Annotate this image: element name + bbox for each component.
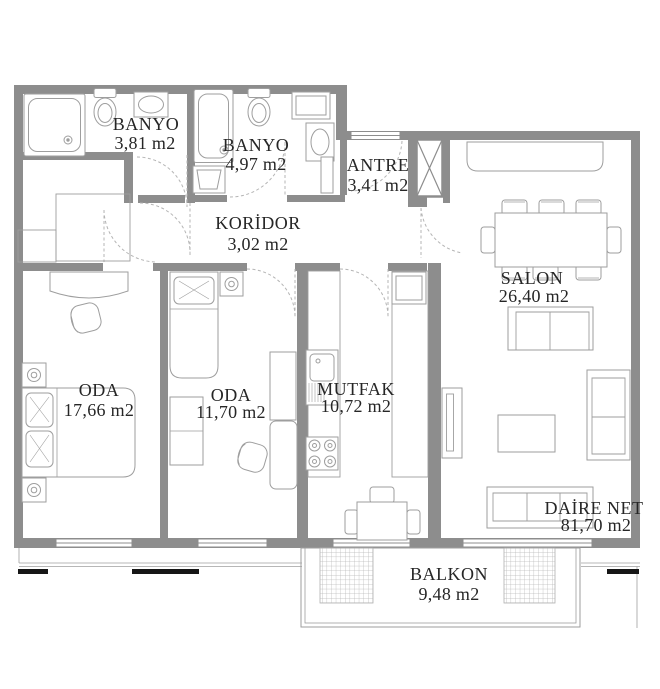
cabinet-icon (321, 157, 333, 193)
label-antre-area: 3,41 m2 (347, 175, 408, 195)
loveseat-icon (508, 307, 593, 350)
desk-icon (50, 272, 128, 298)
chair-icon (235, 440, 269, 475)
tv-unit-icon (442, 388, 462, 458)
nightstand-icon (22, 363, 46, 387)
label-balkon-area: 9,48 m2 (418, 584, 479, 604)
label-oda1-name: ODA (79, 380, 120, 400)
floor-plan: BANYO 3,81 m2 BANYO 4,97 m2 ANTRE 3,41 m… (0, 0, 660, 689)
cabinet-icon (292, 92, 330, 119)
balcony (18, 548, 640, 628)
kitchen-table-icon (345, 487, 420, 540)
door-swing-oda2 (247, 269, 295, 317)
balcony-hatch (320, 548, 373, 603)
label-banyo2-area: 4,97 m2 (225, 154, 286, 174)
door-swing-mutfak (340, 269, 388, 317)
label-oda2-area: 11,70 m2 (196, 402, 266, 422)
label-banyo1-name: BANYO (113, 114, 180, 134)
terrace-line (19, 548, 302, 567)
dining-table-icon (495, 213, 607, 267)
chair-icon (68, 301, 103, 335)
shower-icon (24, 94, 85, 156)
label-balkon-name: BALKON (410, 564, 488, 584)
window-salon (460, 539, 595, 547)
label-salon-area: 26,40 m2 (499, 286, 569, 306)
sofa-icon (587, 370, 630, 460)
window-oda2 (195, 539, 270, 547)
label-koridor-name: KORİDOR (215, 213, 301, 233)
coffee-table-icon (498, 415, 555, 452)
stove-icon (306, 437, 338, 470)
sink-icon (306, 123, 334, 161)
nightstand-icon (220, 272, 243, 296)
label-mutfak-area: 10,72 m2 (321, 396, 391, 416)
label-oda1-area: 17,66 m2 (64, 400, 134, 420)
entry-door (348, 132, 403, 140)
balcony-hatch (504, 548, 555, 603)
door-swing-salon (421, 208, 462, 258)
desk-icon (270, 352, 297, 489)
console-icon (467, 142, 603, 171)
label-banyo2-name: BANYO (223, 135, 290, 155)
fridge-icon (392, 272, 426, 304)
label-daire-net-area: 81,70 m2 (561, 515, 631, 535)
floor-plan-svg: BANYO 3,81 m2 BANYO 4,97 m2 ANTRE 3,41 m… (0, 0, 660, 689)
window-oda1 (53, 539, 135, 547)
door-swing-koridor (140, 203, 190, 255)
washer-icon (193, 166, 225, 193)
door-swing-oda1 (104, 210, 157, 262)
nightstand-icon (22, 478, 46, 502)
label-banyo1-area: 3,81 m2 (114, 133, 175, 153)
closet-icon (18, 194, 130, 262)
label-antre-name: ANTRE (347, 155, 410, 175)
toilet-icon (248, 89, 270, 127)
label-koridor-area: 3,02 m2 (227, 234, 288, 254)
single-bed-icon (170, 272, 218, 378)
shaft-icon (417, 140, 443, 197)
label-salon-name: SALON (501, 268, 564, 288)
